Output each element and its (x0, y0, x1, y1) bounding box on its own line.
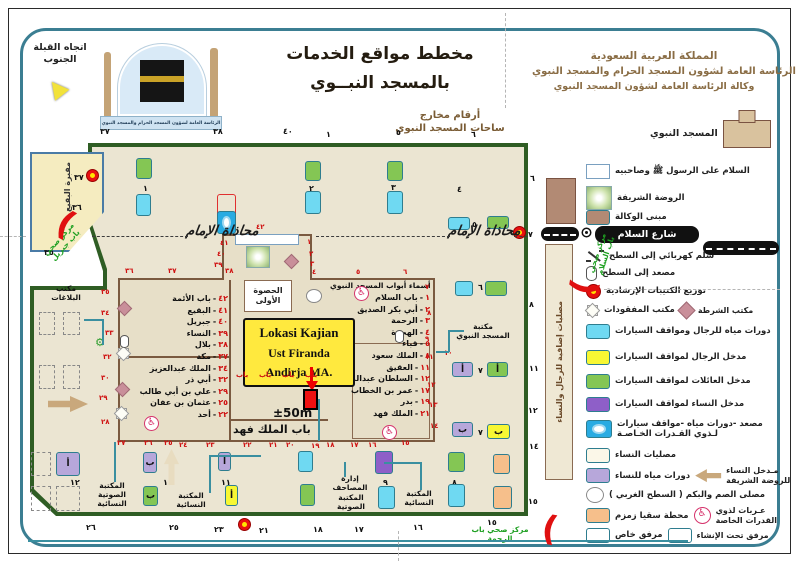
gate-dash: - (213, 328, 216, 340)
map-box-green (448, 452, 465, 472)
map-box-lpurple: أ (452, 362, 473, 377)
legend-men-wc-parking: دورات مياه للرجال ومواقف السيارات (586, 324, 771, 339)
gate-dash: - (420, 292, 423, 304)
gate-list-item: ٣٧-مكة (120, 351, 228, 363)
gate-number: ١ (307, 238, 311, 246)
gate-list-item: ٤٠-جبريل (120, 316, 228, 328)
gate-name: علي بن أبي طالب (140, 386, 211, 398)
services-map-poster: اتجاه القبلة الجنوب الرئاسة العامة لشؤون… (0, 0, 800, 562)
gate-number: ١٩ (311, 442, 320, 450)
alignment-dashed-line (92, 236, 188, 237)
imam-alignment-right: محاذاة الإمام (447, 223, 522, 239)
street-segment (703, 241, 779, 255)
legend-lost-found-police: مكتب المفقوداتمكتب الشرطة (586, 304, 753, 317)
gate-num: ٤١ (218, 305, 228, 317)
leader-line (436, 351, 449, 353)
gate-number: ٣٧ (168, 267, 177, 275)
legend-escalator-label: سلم كهربائي إلى السطح (609, 251, 714, 261)
legend-agency-building-label: مبنى الوكالة (615, 212, 667, 222)
exit-number: ٣٧ (74, 173, 84, 182)
qibla-line2: الجنوب (28, 54, 92, 66)
gate-number: ١٥ (401, 439, 410, 447)
gate-number: ١٤ (430, 422, 439, 430)
gate-num: ٢٩ (218, 386, 228, 398)
gate-name: عثمان بن عفان (150, 397, 211, 409)
gate-list-item: ٢٥-عثمان بن عفان (120, 397, 228, 409)
leader-line (209, 455, 261, 457)
wheelchair-icon: ♿ (354, 286, 369, 301)
gate-number: ٤١ (220, 239, 229, 247)
gate-num: ٤٢ (218, 293, 228, 305)
exit-number: ١ (143, 184, 148, 193)
rawdah-icon (246, 246, 270, 268)
gate-num: ٢٥ (218, 397, 228, 409)
map-box-cyan (455, 281, 473, 296)
gate-name: جبريل (187, 316, 211, 328)
page-title: مخطط مواقع الخدمات بالمسجد النبــوي (282, 40, 478, 98)
street-dot-icon (583, 229, 590, 236)
gate-number: ٧ (425, 283, 429, 291)
legend-women-prayer-areas: مصليات النساء (586, 448, 676, 463)
gate-list-item: ١٩-بدر (332, 396, 430, 408)
gate-num: ٢١ (420, 408, 430, 420)
gate-number: ٢٤ (179, 441, 188, 449)
legend-rawdah: الروضة الشريفة (586, 186, 685, 210)
leader-line (28, 540, 688, 542)
gate-dash: - (420, 338, 423, 350)
map-box-brown (546, 178, 576, 224)
leader-line (448, 330, 464, 332)
elevator-icon (395, 330, 404, 343)
diamond-icon (677, 301, 695, 319)
fold-mark (604, 289, 780, 290)
legend-private-under-construction-label2: مرفق تحت الإنشاء (697, 531, 769, 541)
gate-number: ٢٠ (286, 441, 295, 449)
gate-name: الرحمة (391, 315, 418, 327)
gate-dash: - (213, 339, 216, 351)
leader-line (344, 462, 346, 477)
legend-family-parking-entrance: مدخل العائلات لمواقف السيارات (586, 374, 751, 389)
arrow-left-icon (695, 469, 721, 482)
wheelchair-icon: ♿ (144, 416, 159, 431)
gate-name: باب السلام (375, 292, 418, 304)
gate-num: ٣٢ (218, 374, 228, 386)
gate-number: ٢٧ (117, 439, 126, 447)
gate-dash: - (420, 327, 423, 339)
legend-lost-found-police-label2: مكتب الشرطة (698, 306, 753, 316)
exit-number: ٤ (457, 185, 462, 194)
map-box-cyan (298, 451, 313, 472)
gate-number: باب (305, 371, 317, 379)
gate-num: ٣٩ (218, 328, 228, 340)
annotation-line1: Lokasi Kajian (249, 323, 349, 344)
gate-number: باب (236, 371, 248, 379)
gate-list-item: ٢٢-أحد (120, 409, 228, 421)
legend-deaf-mute-prayer: مصلى الصم والبكم ( السطح الغربي ) (586, 487, 765, 503)
legend-prophets-mosque-label: المسجد النبوي (650, 128, 718, 139)
gate-name: البقيع (187, 305, 211, 317)
rect-lavender-icon (586, 468, 610, 483)
map-box-lpurple: أ (56, 452, 80, 476)
gate-number: ٤٠ (217, 250, 226, 258)
distance-label: ±50m (273, 406, 312, 420)
gate-dash: - (213, 316, 216, 328)
wheelchair-icon: ♿ (694, 507, 711, 524)
logo-minaret-right-icon (210, 48, 218, 116)
exit-number: ١٧ (354, 525, 364, 534)
legend-women-wc-rawdah-entrance: دورات مياه للنساءمـدخل النساء للروضة الش… (586, 466, 790, 485)
exits-caption-line1: أرقام مخارج (388, 109, 512, 122)
fold-mark (0, 236, 26, 237)
exit-number: ٤٠ (283, 127, 293, 136)
gate-dash: - (213, 409, 216, 421)
gate-number: ٣٢ (103, 353, 112, 361)
exit-number: ٣٧ (100, 127, 110, 136)
gate-number: ٢٩ (99, 394, 108, 402)
gate-list-item: ٣٤-الملك عبدالعزيز (120, 363, 228, 375)
gate-number: ٥ (356, 268, 360, 276)
legend-men-wc-parking-label: دورات مياه للرجال ومواقف السيارات (615, 326, 771, 336)
title-line2: بالمسجد النبــوي (282, 69, 478, 98)
exit-number: ٢١ (259, 526, 269, 535)
exit-number: ٧ (478, 428, 483, 437)
gate-name: عمر بن الخطاب (351, 385, 413, 397)
rect-cream-icon (586, 448, 610, 463)
gate-num: ١١ (420, 362, 430, 374)
gate-number: ٢١ (269, 441, 278, 449)
map-box-green (485, 281, 507, 296)
map-box-green: أ (487, 362, 508, 377)
fold-mark (505, 13, 506, 108)
qibla-line1: اتجاه القبلة (28, 42, 92, 54)
gate-number: باب (282, 371, 294, 379)
legend-salam-on-messenger: السلام على الرسول ﷺ وصاحبيه (586, 164, 750, 179)
gate-list-item: ٤١-البقيع (120, 305, 228, 317)
gate-number: ١٣ (429, 401, 438, 409)
legend-women-wc-rawdah-entrance-label2: مـدخل النساء للروضة الشريفة (726, 466, 790, 485)
gate-name: باب الأئمة (172, 293, 211, 305)
lost-found-icon (115, 407, 128, 420)
gate-number: ١٦ (368, 441, 377, 449)
leader-line (420, 462, 422, 490)
women-library2-label: المكتبة النسائية (393, 489, 445, 507)
gate-number: ٣٤ (101, 309, 110, 317)
fold-mark (398, 531, 399, 561)
legend-agency-building: مبنى الوكالة (586, 210, 667, 225)
gate-number: ١٢ (427, 381, 436, 389)
rect-purple-icon (586, 397, 610, 412)
gate-list-item: ٢١-الملك فهد (332, 408, 430, 420)
logo-banner: الرئاسة العامة لشؤون المسجد الحرام والمس… (100, 116, 222, 130)
organization-header: المملكة العربية السعودية الرئاسة العامة … (532, 48, 776, 94)
exit-number: ٢٦ (86, 523, 96, 532)
under-construction-box (39, 312, 55, 335)
legend-prophets-mosque: المسجد النبوي (650, 120, 771, 148)
leader-line (384, 462, 422, 464)
gate-number: ٢٢ (243, 441, 252, 449)
gate-number: ٢ (309, 250, 313, 258)
legend-accessible-services-label: مصعد -دورات مياه -مواقف سيارات لـذوي الق… (617, 419, 763, 439)
legend-booklets-label: توزيع الكتيبات الإرشادية (606, 286, 706, 296)
gate-dash: - (213, 374, 216, 386)
legend-men-parking-entrance: مدخل الرجال لمواقف السيارات (586, 350, 746, 365)
exit-number: ٧ (478, 366, 483, 375)
gate-dash: - (415, 385, 418, 397)
legend-women-wc-rawdah-entrance-label: دورات مياه للنساء (615, 471, 690, 481)
gate-dash: - (415, 408, 418, 420)
map-box-cyan (387, 191, 403, 214)
gate-name: العقيق (386, 362, 413, 374)
audio-library-label: المكتبة الصوتية (328, 493, 374, 511)
gate-num: ٤٠ (218, 316, 228, 328)
exit-number: ١٨ (313, 525, 323, 534)
gate-number: ١٨ (326, 441, 335, 449)
gate-name: مكة (196, 351, 210, 363)
gate-dash: - (213, 293, 216, 305)
booklets-icon (238, 518, 251, 531)
title-line1: مخطط مواقع الخدمات (282, 40, 478, 69)
exit-number: ١٤ (529, 442, 539, 451)
legend-family-parking-entrance-label: مدخل العائلات لمواقف السيارات (615, 376, 751, 386)
exit-number: ١ (326, 130, 331, 139)
map-box-green (300, 484, 315, 506)
alignment-dashed-line (316, 236, 450, 237)
gate-dash: - (213, 351, 216, 363)
gate-dash: - (415, 362, 418, 374)
legend-zamzam-carts-label2: عـربات لذوي القدرات الخاصة (716, 506, 777, 525)
under-construction-box (31, 452, 51, 476)
gate-num: ٢٢ (218, 409, 228, 421)
legend-women-parking-entrance: مدخل النساء لمواقف السيارات (586, 397, 744, 412)
gate-list-item: ٣٨-بلال (120, 339, 228, 351)
street-segment (541, 227, 579, 241)
exit-number: ١٢ (528, 406, 538, 415)
gate-name: أحد (198, 409, 211, 421)
map-box-yellow: أ (225, 485, 238, 506)
map-box-lpurple: ب (452, 422, 473, 437)
mushaf-admin-label: إدارة المصاحف (325, 474, 375, 492)
gate-name: النساء (187, 328, 211, 340)
rect-yellow-icon (586, 350, 610, 365)
gate-list-item: ١-باب السلام (332, 292, 430, 304)
legend-rawdah-label: الروضة الشريفة (617, 193, 685, 203)
under-construction-box (31, 486, 51, 511)
gate-list-item: ٣٩-النساء (120, 328, 228, 340)
building-icon (723, 120, 771, 148)
gate-number: ٣ (310, 260, 314, 268)
rect-special-icon (586, 420, 612, 438)
legend-zamzam-carts: محطة سقيا زمزم♿عـربات لذوي القدرات الخاص… (586, 506, 777, 525)
gate-list-item: ٤٢-باب الأئمة (120, 293, 228, 305)
exit-number: ١٦ (413, 523, 423, 532)
logo-minaret-left-icon (104, 52, 111, 116)
rect-orange-icon (586, 508, 610, 523)
gate-dash: - (213, 363, 216, 375)
map-box-cyan (448, 484, 465, 507)
org-line1: المملكة العربية السعودية (532, 48, 776, 64)
exit-number: ١١ (529, 364, 539, 373)
gate-number: ٢٣ (206, 441, 215, 449)
gate-number: ٢٨ (101, 418, 110, 426)
legend-elevator-label: مصعد إلى السطح (602, 268, 675, 278)
leader-line (102, 319, 104, 345)
under-construction-box (56, 486, 80, 511)
gate-name: بدر (401, 396, 413, 408)
wheelchair-icon: ♿ (382, 425, 397, 440)
gate-list-item: ٣٢-أبي ذر (120, 374, 228, 386)
exit-number: ٦ (530, 174, 535, 183)
leader-line (114, 442, 116, 482)
rect-cyan-icon (586, 324, 610, 339)
women-audio-library-label: المكتبة الصوتية النسائية (90, 481, 134, 508)
gate-list-item: ٢٩-علي بن أبي طالب (120, 386, 228, 398)
map-box-orange (493, 486, 512, 509)
gate-number: ٢٥ (164, 439, 173, 447)
gate-name: الملك عبدالعزيز (150, 363, 211, 375)
gate-number: ٣٨ (225, 267, 234, 275)
gate-dash: - (415, 396, 418, 408)
exits-caption-line2: ساحات المسجد النبوي (388, 122, 512, 135)
gate-dash: - (213, 386, 216, 398)
exit-number: ٣٨ (213, 127, 223, 136)
qibla-direction-label: اتجاه القبلة الجنوب (28, 42, 92, 67)
gate-list-item: ٢-أبي بكر الصديق (332, 304, 430, 316)
reports-office-label: مكتب البلاغات (42, 284, 90, 302)
rect-white-icon (586, 164, 610, 179)
legend-accessible-services: مصعد -دورات مياه -مواقف سيارات لـذوي الق… (586, 419, 763, 439)
star8-icon (586, 304, 599, 317)
leader-line (448, 330, 450, 352)
exit-number: ١٥ (528, 497, 538, 506)
gate-number: ٣٩ (214, 261, 223, 269)
legend-women-prayer-areas-label: مصليات النساء (615, 450, 676, 460)
exit-number: ٦ (478, 283, 483, 292)
gate-number: ٣٠ (101, 374, 110, 382)
additional-prayer-areas-label: مصليات إضافية للرجال والنساء (555, 301, 564, 423)
gate-number: ٣٦ (125, 267, 134, 275)
exit-number: ٧ (528, 230, 533, 239)
map-box-green: ب (143, 486, 158, 506)
under-construction-box (63, 312, 80, 335)
exit-numbers-caption: أرقام مخارج ساحات المسجد النبوي (388, 109, 512, 135)
leader-line (209, 455, 211, 493)
logo-kaaba-icon (140, 60, 184, 102)
map-box-cyan (305, 191, 321, 214)
legend-deaf-mute-prayer-label: مصلى الصم والبكم ( السطح الغربي ) (609, 490, 765, 500)
exit-number: ٥ (396, 128, 401, 137)
gate-dash: - (420, 304, 423, 316)
gate-name: الملك فهد (373, 408, 413, 420)
legend-salam-on-messenger-label: السلام على الرسول ﷺ وصاحبيه (615, 166, 750, 176)
gate-name: قباء (402, 338, 418, 350)
gates-list-west: ٤٢-باب الأئمة٤١-البقيع٤٠-جبريل٣٩-النساء٣… (120, 293, 228, 421)
org-line3: وكالة الرئاسة العامة لشؤون المسجد النبوي (532, 80, 776, 95)
legend-men-parking-entrance-label: مدخل الرجال لمواقف السيارات (615, 352, 746, 362)
gate-number: ٤ (312, 268, 316, 276)
legend-lost-found-police-label: مكتب المفقودات (604, 305, 675, 315)
gates-list-title: أسماء أبواب المسجد النبوي (330, 281, 431, 290)
legend-women-parking-entrance-label: مدخل النساء لمواقف السيارات (615, 399, 744, 409)
gate-name: أبي بكر الصديق (357, 304, 418, 316)
gate-dash: - (420, 315, 423, 327)
map-box-yellow: ب (487, 424, 510, 439)
first-courtyard-label: الحصوة الأولى (244, 280, 292, 312)
map-box-orange (493, 454, 510, 474)
alignment-dashed-line (514, 236, 528, 237)
gate-number: ١٧ (350, 441, 359, 449)
booklets-icon (86, 169, 99, 182)
women-library-label: المكتبة النسائية (166, 491, 216, 509)
under-construction-box (39, 365, 55, 389)
elevator-icon (120, 335, 129, 348)
gate-number: ١١ (425, 353, 434, 361)
gate-dash: - (213, 305, 216, 317)
map-box-green (136, 158, 152, 179)
mosque-inner-wall (229, 280, 231, 440)
leader-line (84, 319, 104, 321)
gate-number: ٩ (425, 335, 429, 343)
rawdah-icon (586, 186, 612, 210)
legend-zamzam-carts-label: محطة سقيا زمزم (615, 511, 689, 521)
leader-line (318, 399, 320, 441)
exit-number: ٨ (529, 300, 534, 309)
imam-alignment-left: محاذاة الإمام (185, 223, 260, 239)
gate-dash: - (415, 373, 418, 385)
map-box-lpurple: ب (143, 452, 157, 473)
gate-num: ٣٤ (218, 363, 228, 375)
rect-green-icon (586, 374, 610, 389)
map-box-green (305, 161, 321, 181)
gate-number: ٢٦ (144, 439, 153, 447)
map-box-green (387, 161, 403, 181)
king-fahd-gate-label: باب الملك فهد (233, 423, 303, 436)
exit-number: ٢٥ (169, 523, 179, 532)
gate-name: أبي ذر (186, 374, 211, 386)
gate-dash: - (420, 350, 423, 362)
gate-num: ٣٨ (218, 339, 228, 351)
map-box-cyan (136, 194, 151, 216)
gate-dash: - (213, 397, 216, 409)
gate-number: ٣٥ (101, 288, 110, 296)
under-construction-box (63, 365, 80, 389)
circle-icon (586, 487, 604, 503)
exit-number: ٦ (471, 130, 476, 139)
gate-number: ٣٣ (105, 329, 114, 337)
deaf-prayer-icon (306, 289, 322, 303)
gate-number: باب (259, 371, 271, 379)
gate-num: ١ (425, 292, 430, 304)
gate-num: ٣٧ (218, 351, 228, 363)
gate-number: ٦ (403, 268, 407, 276)
gate-name: بلال (195, 339, 211, 351)
lost-found-icon (117, 347, 130, 360)
org-line2: الرئاسة العامة لشؤون المسجد الحرام والمس… (532, 64, 776, 80)
exit-number: ٢٣ (214, 525, 224, 534)
gate-name: الملك سعود (372, 350, 418, 362)
gate-number: ٨ (427, 309, 431, 317)
